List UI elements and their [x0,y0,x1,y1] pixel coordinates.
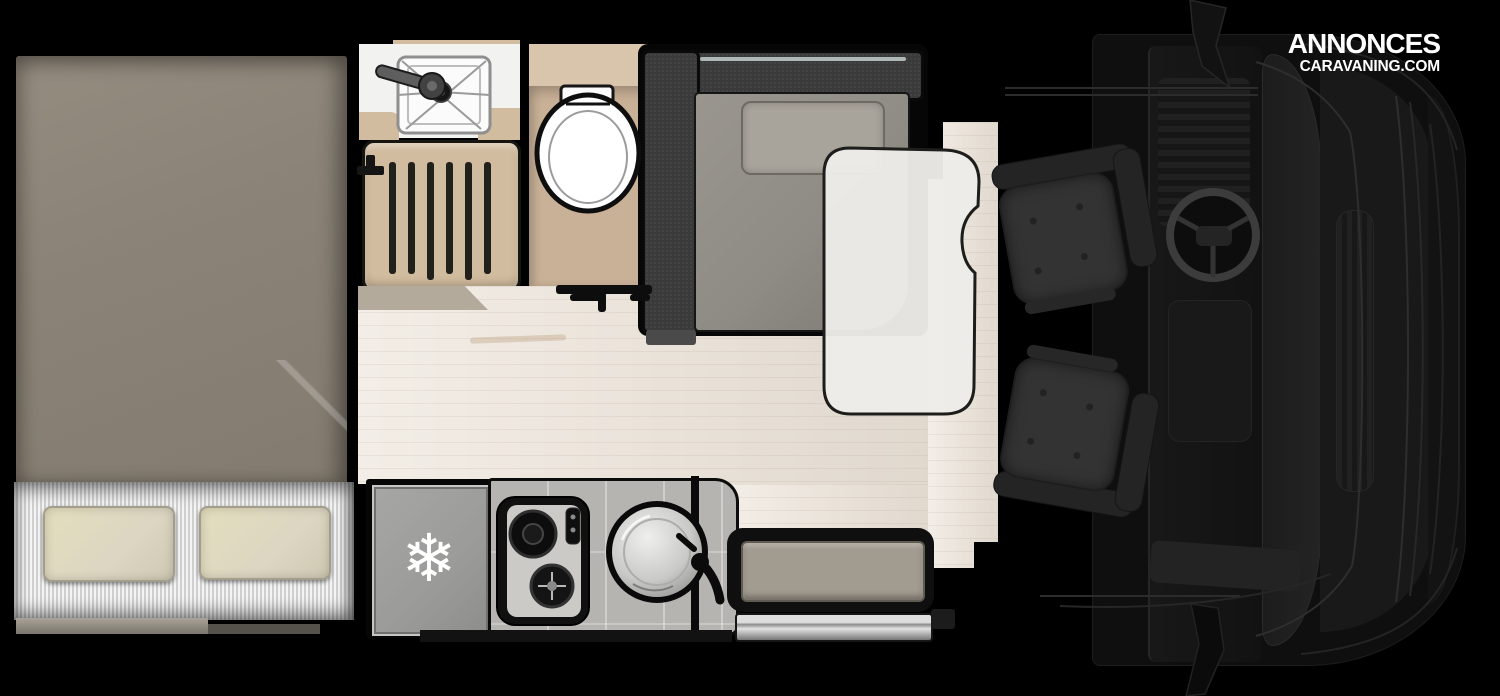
watermark-line1: ANNONCES [1288,30,1440,58]
detail-overlay [0,0,1500,696]
bathroom-door-hardware [556,285,652,312]
watermark-line2: CARAVANING.COM [1288,59,1440,75]
side-mirror-bottom [1186,604,1224,696]
dinette-table [824,148,979,414]
cab-outline-lines [1005,44,1457,654]
steering-wheel [1170,192,1256,278]
toilet [537,86,639,211]
kitchen-sink [609,504,705,600]
watermark-logo: ANNONCES CARAVANING.COM [1288,30,1440,75]
shower-tray [398,57,490,133]
motorhome-floorplan: ❄ [0,0,1500,696]
side-mirror-top [1190,0,1230,88]
stove [497,497,589,625]
